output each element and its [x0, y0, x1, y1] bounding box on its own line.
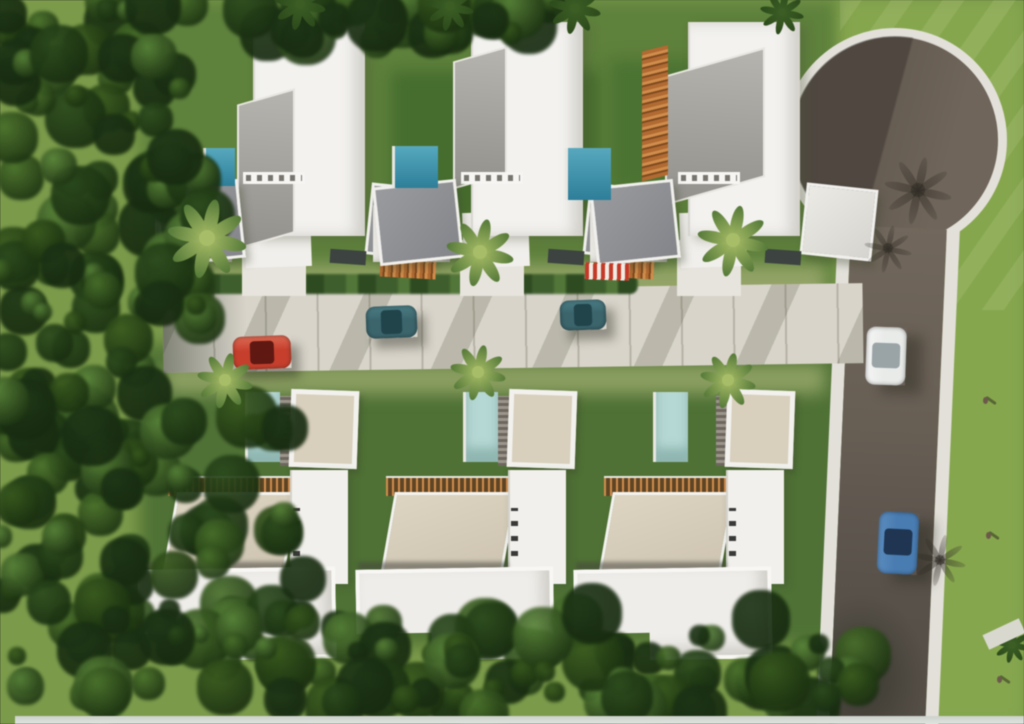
forest-canopy-blob	[42, 520, 77, 555]
forest-canopy-blob	[139, 281, 184, 326]
forest-canopy-blob	[656, 646, 681, 671]
forest-canopy-blob	[472, 2, 509, 39]
villa-top-right-skylight	[765, 249, 802, 265]
palm-shadow	[864, 224, 912, 272]
forest-canopy-blob	[196, 546, 230, 580]
car-glass	[883, 529, 913, 557]
forest-canopy-blob	[84, 272, 121, 309]
villa-bottom-middle-entry-cube	[507, 389, 578, 469]
forest-canopy-blob	[101, 468, 142, 509]
palm-crown	[473, 245, 487, 259]
palm-tree	[446, 218, 514, 286]
car-glass	[871, 343, 901, 368]
tree-canopy	[426, 0, 474, 30]
pedestrian	[986, 532, 991, 539]
palm-crown	[445, 1, 455, 11]
forest-canopy-blob	[544, 682, 564, 702]
forest-canopy-blob	[262, 405, 308, 451]
palm-tree	[697, 204, 769, 276]
palm-shadow	[884, 156, 952, 224]
car-glass	[250, 340, 274, 365]
forest-canopy-blob	[8, 647, 26, 665]
palm-crown	[199, 230, 215, 246]
forest-canopy-blob	[150, 551, 198, 599]
car-glass	[573, 304, 592, 326]
pool-top-2	[392, 146, 438, 188]
forest-canopy-blob	[285, 605, 319, 639]
forest-canopy-blob	[837, 663, 880, 706]
palm-crown	[883, 243, 893, 253]
car-teal-1	[365, 305, 417, 339]
forest-canopy-blob	[445, 644, 479, 678]
forest-canopy-blob	[375, 638, 398, 661]
forest-canopy-blob	[280, 556, 326, 602]
forest-canopy-blob	[40, 243, 85, 288]
forest-canopy-blob	[169, 78, 190, 99]
car-blue	[876, 511, 919, 575]
forest-canopy-blob	[132, 667, 165, 700]
tree-canopy	[549, 0, 601, 34]
forest-canopy-blob	[30, 25, 88, 83]
palm-crown	[722, 374, 733, 385]
palm-tree	[167, 198, 247, 278]
forest-canopy-blob	[27, 580, 72, 625]
site-plan-render	[0, 0, 1024, 724]
forest-canopy-blob	[271, 502, 296, 527]
forest-canopy-blob	[223, 633, 249, 659]
forest-canopy-blob	[601, 671, 653, 723]
forest-canopy-blob	[167, 464, 194, 491]
forest-canopy-blob	[168, 626, 188, 646]
forest-canopy-blob	[255, 637, 278, 660]
forest-canopy-blob	[93, 114, 134, 155]
forest-canopy-blob	[732, 590, 790, 648]
forest-canopy-blob	[62, 406, 123, 467]
forest-canopy-blob	[7, 668, 44, 705]
forest-canopy-blob	[96, 0, 120, 22]
forest-canopy-blob	[812, 682, 841, 711]
forest-canopy-blob	[534, 661, 554, 681]
forest-canopy-blob	[197, 659, 252, 714]
forest-canopy-blob	[40, 148, 76, 184]
forest-canopy-blob	[0, 482, 40, 526]
palm-crown	[219, 374, 230, 385]
palm-crown	[472, 366, 483, 377]
forest-canopy-blob	[64, 311, 86, 333]
villa-top-middle-skylight	[548, 249, 585, 265]
villa-top-right-balcony-dashes	[681, 175, 737, 181]
forest-canopy-blob	[131, 34, 177, 80]
forest-canopy-blob	[186, 295, 206, 315]
villa-top-middle-sloped-roof	[453, 46, 507, 189]
screenshot-root	[0, 0, 1024, 724]
forest-canopy-blob	[749, 652, 809, 712]
palm-crown	[911, 183, 925, 197]
tree-canopy	[274, 0, 326, 30]
forest-canopy-blob	[392, 685, 420, 713]
palm-crown	[1008, 641, 1015, 648]
forest-canopy-blob	[264, 678, 307, 721]
villa-top-right-striped-awning	[585, 262, 630, 281]
villa-top-left-skylight	[330, 249, 367, 265]
forest-canopy-blob	[562, 583, 623, 644]
palm-shadow	[914, 534, 966, 586]
forest-canopy-blob	[102, 606, 130, 634]
villa-bottom-right-window-dots	[729, 508, 736, 556]
villa-bottom-middle-window-dots	[511, 508, 518, 556]
forest-canopy-blob	[0, 525, 12, 548]
forest-canopy-blob	[346, 0, 408, 52]
palm-tree	[450, 344, 506, 400]
car-glass	[381, 310, 402, 334]
palm-tree	[197, 352, 253, 408]
bottom-path-strip	[15, 716, 1024, 724]
forest-canopy-blob	[809, 634, 829, 654]
villa-bottom-right-pool	[653, 392, 688, 462]
forest-canopy-blob	[0, 333, 27, 372]
villa-bottom-middle-pool	[463, 392, 498, 462]
pedestrian	[983, 397, 988, 404]
forest-canopy-blob	[147, 129, 203, 185]
forest-canopy-blob	[79, 667, 131, 719]
pedestrian	[997, 676, 1002, 683]
villa-top-left-balcony-dashes	[246, 175, 302, 181]
pool-top-3	[565, 148, 611, 200]
car-teal-2	[559, 299, 606, 331]
villa-top-middle-balcony-dashes	[464, 175, 520, 181]
forest-canopy-blob	[203, 455, 261, 513]
palm-tree	[700, 352, 756, 408]
tree-canopy	[760, 0, 804, 34]
car-white	[865, 326, 907, 385]
forest-canopy-blob	[689, 625, 710, 646]
forest-canopy-blob	[33, 303, 52, 322]
villa-top-right-wood-slat-wall	[642, 45, 668, 181]
